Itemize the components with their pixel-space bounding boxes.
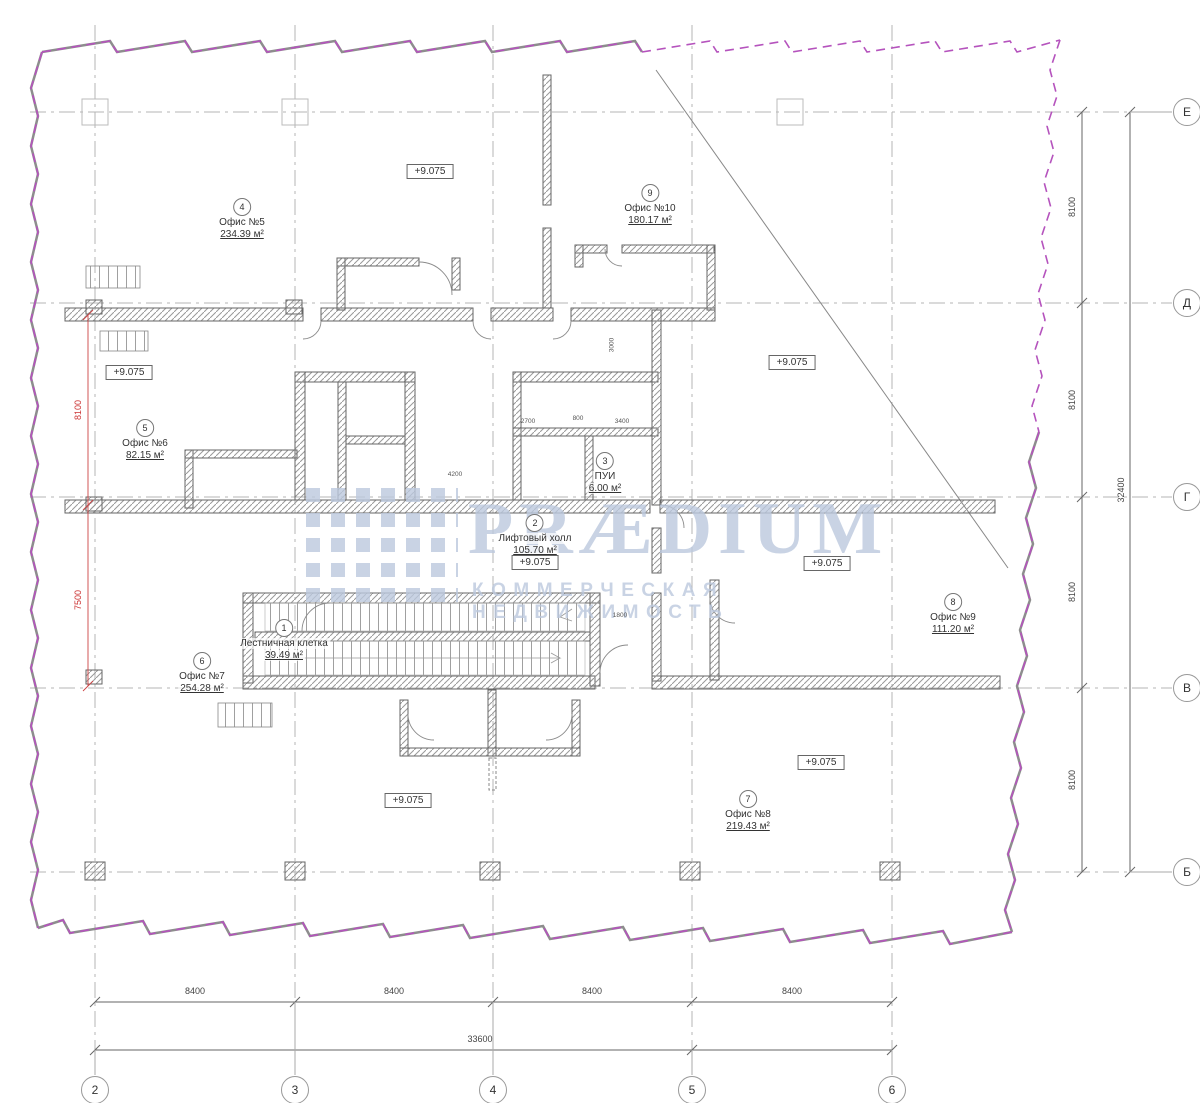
room-name: Офис №10 — [622, 203, 677, 214]
dim-right-3: 8100 — [1067, 582, 1077, 602]
room-name: Офис №8 — [723, 809, 773, 820]
room-name: Офис №7 — [177, 671, 227, 682]
dim-bottom-3: 8400 — [582, 986, 602, 996]
room-name: Офис №6 — [120, 438, 170, 449]
grid-bubble-row-g: Г — [1173, 483, 1200, 511]
grid-bubble-row-e: Е — [1173, 98, 1200, 126]
room-area: 180.17 м² — [626, 215, 674, 226]
room-name: ПУИ — [593, 471, 618, 482]
room-label-office5: 4 Офис №5 234.39 м² — [217, 198, 267, 240]
grid-bubble-row-d: Д — [1173, 289, 1200, 317]
dim-detail-1800: 1800 — [613, 612, 627, 619]
room-number-badge: 2 — [526, 514, 544, 532]
dim-left-red-7500: 7500 — [73, 590, 83, 610]
room-number-badge: 7 — [739, 790, 757, 808]
room-number-badge: 6 — [193, 652, 211, 670]
room-number-badge: 4 — [233, 198, 251, 216]
room-number-badge: 9 — [641, 184, 659, 202]
grid-bubble-row-v: В — [1173, 674, 1200, 702]
grid-bubble-col-6: 6 — [878, 1076, 906, 1103]
dim-bottom-2: 8400 — [384, 986, 404, 996]
dim-bottom-4: 8400 — [782, 986, 802, 996]
dim-detail-4200: 4200 — [448, 471, 462, 478]
room-area: 39.49 м² — [263, 650, 305, 661]
room-number-badge: 8 — [944, 593, 962, 611]
floor-plan-sheet: PRÆDIUM КОММЕРЧЕСКАЯ НЕДВИЖИМОСТЬ 4 Офис… — [0, 0, 1200, 1103]
dim-right-2: 8100 — [1067, 390, 1077, 410]
elevation-mark: +9.075 — [385, 793, 432, 808]
grid-bubble-col-4: 4 — [479, 1076, 507, 1103]
room-number-badge: 1 — [275, 619, 293, 637]
room-name: Офис №9 — [928, 612, 978, 623]
grid-bubble-row-b: Б — [1173, 858, 1200, 886]
elevation-mark: +9.075 — [798, 755, 845, 770]
room-label-office6: 5 Офис №6 82.15 м² — [120, 419, 170, 461]
room-number-badge: 5 — [136, 419, 154, 437]
room-label-office9: 8 Офис №9 111.20 м² — [928, 593, 978, 635]
room-name: Лифтовый холл — [497, 533, 574, 544]
dim-right-total: 32400 — [1116, 477, 1126, 502]
room-area: 111.20 м² — [930, 624, 976, 635]
room-label-pui: 3 ПУИ 6.00 м² — [587, 452, 623, 494]
room-number-badge: 3 — [596, 452, 614, 470]
dim-detail-800: 800 — [573, 415, 584, 422]
room-label-office7: 6 Офис №7 254.28 м² — [177, 652, 227, 694]
elevation-mark: +9.075 — [106, 365, 153, 380]
grid-bubble-col-5: 5 — [678, 1076, 706, 1103]
elevation-mark: +9.075 — [512, 555, 559, 570]
grid-lines — [30, 25, 1172, 1074]
room-name: Лестничная клетка — [238, 638, 330, 649]
room-label-office10: 9 Офис №10 180.17 м² — [622, 184, 677, 226]
dim-detail-3400: 3400 — [615, 418, 629, 425]
dim-right-1: 8100 — [1067, 197, 1077, 217]
dim-bottom-1: 8400 — [185, 986, 205, 996]
floor-plan-linework — [0, 0, 1200, 1103]
facade-walls — [31, 41, 1039, 944]
room-label-staircase: 1 Лестничная клетка 39.49 м² — [238, 619, 330, 661]
elevation-mark: +9.075 — [804, 556, 851, 571]
grid-bubble-col-2: 2 — [81, 1076, 109, 1103]
room-area: 82.15 м² — [124, 450, 166, 461]
room-area: 6.00 м² — [587, 483, 623, 494]
room-area: 234.39 м² — [218, 229, 266, 240]
room-area: 254.28 м² — [178, 683, 226, 694]
dim-detail-3000: 3000 — [609, 338, 616, 352]
elevation-mark: +9.075 — [769, 355, 816, 370]
dim-detail-2700: 2700 — [521, 418, 535, 425]
grid-bubble-col-3: 3 — [281, 1076, 309, 1103]
dim-bottom-total: 33600 — [467, 1034, 492, 1044]
room-label-lift-hall: 2 Лифтовый холл 105.70 м² — [497, 514, 574, 556]
dim-left-red-8100: 8100 — [73, 400, 83, 420]
dimension-lines-bottom — [90, 997, 897, 1075]
room-name: Офис №5 — [217, 217, 267, 228]
room-label-office8: 7 Офис №8 219.43 м² — [723, 790, 773, 832]
elevation-mark: +9.075 — [407, 164, 454, 179]
dim-right-4: 8100 — [1067, 770, 1077, 790]
room-area: 219.43 м² — [724, 821, 772, 832]
walls-layer — [65, 75, 1000, 880]
